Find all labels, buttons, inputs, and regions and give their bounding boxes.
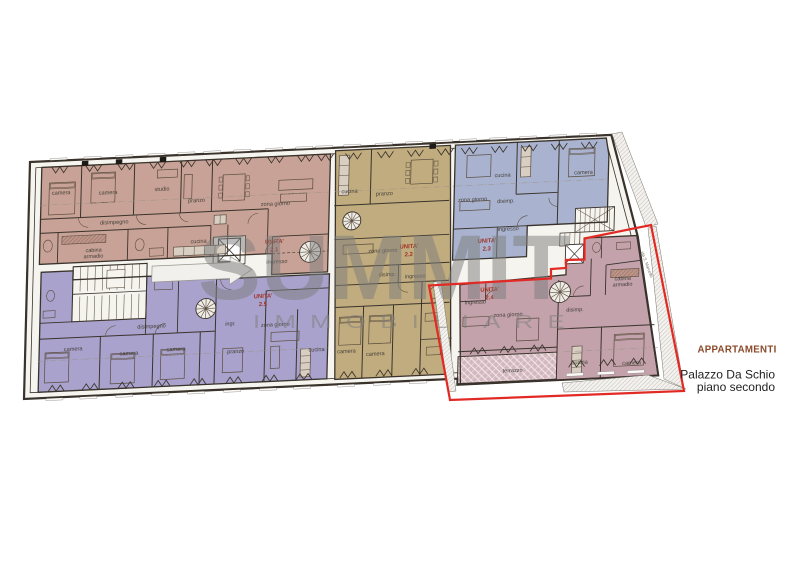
svg-text:piano secondo: piano secondo	[697, 380, 775, 394]
svg-text:camera: camera	[167, 346, 187, 353]
svg-text:armadio: armadio	[83, 253, 103, 260]
svg-text:camera: camera	[622, 360, 642, 367]
svg-text:pranzo: pranzo	[188, 198, 205, 205]
svg-text:pranzo: pranzo	[376, 191, 393, 198]
svg-text:cucina: cucina	[494, 172, 511, 179]
svg-text:studio: studio	[154, 186, 169, 193]
svg-text:ingr.: ingr.	[225, 321, 236, 328]
svg-text:camera: camera	[337, 348, 357, 355]
svg-text:cucina: cucina	[308, 347, 325, 354]
svg-text:pranzo: pranzo	[227, 349, 244, 356]
svg-text:camera: camera	[64, 346, 84, 353]
svg-text:SUMMIT: SUMMIT	[198, 217, 570, 319]
svg-text:camera: camera	[574, 170, 594, 177]
svg-text:cucina: cucina	[341, 189, 358, 196]
svg-text:terrazzo: terrazzo	[503, 368, 523, 375]
svg-text:camera: camera	[120, 351, 140, 358]
svg-text:camera: camera	[366, 351, 386, 358]
svg-text:APPARTAMENTI: APPARTAMENTI	[697, 345, 776, 356]
svg-text:IMMOBILIARE: IMMOBILIARE	[253, 312, 579, 332]
svg-text:cucina: cucina	[572, 360, 589, 367]
svg-text:camera: camera	[99, 190, 119, 197]
svg-text:armadio: armadio	[613, 282, 633, 289]
svg-text:disimp.: disimp.	[497, 198, 515, 205]
svg-text:camera: camera	[52, 190, 72, 197]
